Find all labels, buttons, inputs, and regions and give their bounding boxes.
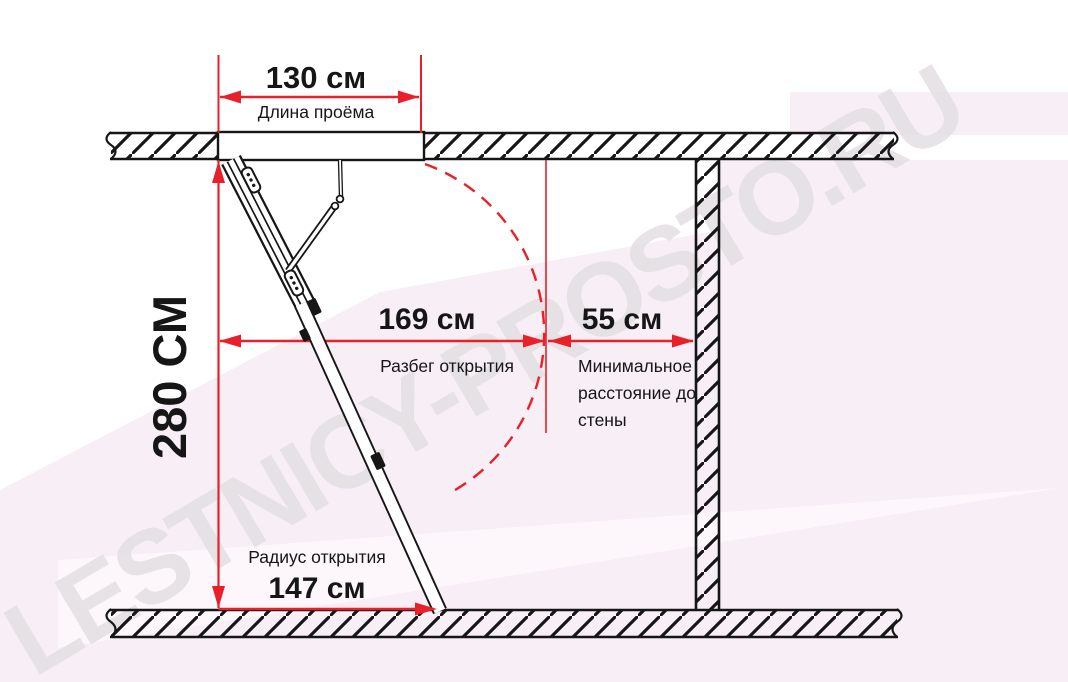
dim-run-arrow-left [219, 335, 241, 348]
dim-opening-value: 130 см [216, 60, 416, 96]
ceiling-slab [107, 132, 898, 160]
spring-pivot-lower [332, 203, 339, 210]
dim-radius-value: 147 см [217, 572, 417, 606]
dim-opening-label: Длина проёма [216, 102, 416, 123]
dim-run-value: 169 см [327, 303, 527, 337]
wall-hatch [697, 160, 718, 610]
dim-height-value: 280 СМ [145, 257, 195, 497]
spring-pivot-upper [337, 196, 344, 203]
ceiling-opening [218, 132, 424, 160]
attic-ladder-dimension-diagram: LESTNICY-PROSTO.RU [0, 0, 1068, 682]
attic-ladder [228, 159, 441, 611]
floor-hatch [111, 610, 897, 637]
spring-strut-fill [288, 207, 334, 271]
dim-run-label: Разбег открытия [347, 356, 547, 377]
dim-radius-label: Радиус открытия [217, 547, 417, 568]
spring-rod-fill [340, 160, 341, 197]
dim-wall-value: 55 см [542, 303, 702, 337]
dim-wall-label: Минимальное расстояние до стены [578, 353, 700, 434]
floor-slab [107, 609, 902, 637]
